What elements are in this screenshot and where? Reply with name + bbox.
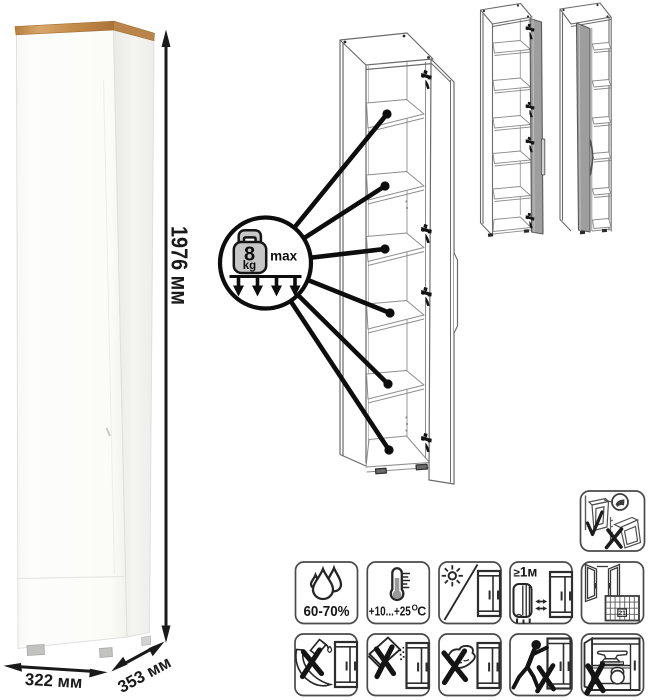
svg-text:kg: kg (243, 260, 256, 272)
svg-text:max: max (270, 249, 298, 264)
svg-text:≥1м: ≥1м (514, 565, 538, 580)
svg-text:60-70%: 60-70% (304, 603, 350, 620)
svg-text:C: C (417, 605, 426, 619)
svg-text:322 мм: 322 мм (24, 670, 82, 692)
svg-text:21: 21 (618, 610, 626, 617)
svg-text:+10...+25: +10...+25 (369, 605, 411, 619)
svg-text:1976 мм: 1976 мм (167, 226, 193, 305)
